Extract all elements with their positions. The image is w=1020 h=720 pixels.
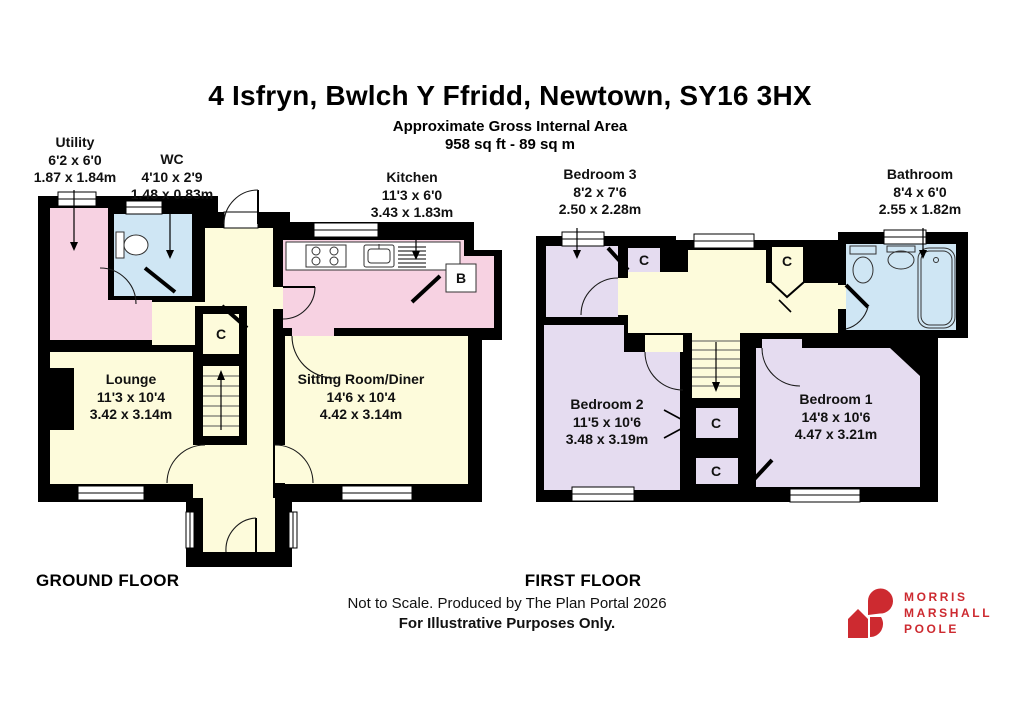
room-label-bedroom2: Bedroom 2 11'5 x 10'6 3.48 x 3.19m [566,396,649,449]
agency-logo-mark [848,586,894,640]
hob-icon [306,245,346,267]
wc-room-area [114,214,192,296]
room-label-kitchen: Kitchen 11'3 x 6'0 3.43 x 1.83m [371,169,454,222]
chimney-breast [50,368,74,430]
room-label-bedroom3: Bedroom 3 8'2 x 7'6 2.50 x 2.28m [559,166,642,219]
room-label-bathroom: Bathroom 8'4 x 6'0 2.55 x 1.82m [879,166,962,219]
first-floor-title: FIRST FLOOR [525,571,642,591]
boiler-letter: B [456,270,466,286]
room-label-wc: WC 4'10 x 2'9 1.48 x 0.83m [131,151,214,204]
room-label-bedroom1: Bedroom 1 14'8 x 10'6 4.47 x 3.21m [795,391,878,444]
porch-area [203,498,275,552]
ground-floor-title: GROUND FLOOR [36,571,179,591]
cupboard-letter: C [711,415,721,431]
subtitle-area-value: 958 sq ft - 89 sq m [445,136,575,153]
agency-name: MORRIS MARSHALL POOLE [904,589,992,637]
room-label-utility: Utility 6'2 x 6'0 1.87 x 1.84m [34,134,117,187]
page-title: 4 Isfryn, Bwlch Y Ffridd, Newtown, SY16 … [208,80,812,112]
disclaimer-line2: For Illustrative Purposes Only. [399,615,615,632]
room-label-sitting-room: Sitting Room/Diner 14'6 x 10'4 4.42 x 3.… [298,371,425,424]
cupboard-letter: C [782,253,792,269]
subtitle-area-label: Approximate Gross Internal Area [393,118,628,135]
cupboard-letter: C [711,463,721,479]
disclaimer-line1: Not to Scale. Produced by The Plan Porta… [347,595,666,612]
cupboard-letter: C [639,252,649,268]
first-floor-plan [536,228,968,502]
agency-logo: MORRIS MARSHALL POOLE [848,586,992,640]
floorplan-page: 4 Isfryn, Bwlch Y Ffridd, Newtown, SY16 … [0,0,1020,720]
room-label-lounge: Lounge 11'3 x 10'4 3.42 x 3.14m [90,371,173,424]
cupboard-letter: C [216,326,226,342]
